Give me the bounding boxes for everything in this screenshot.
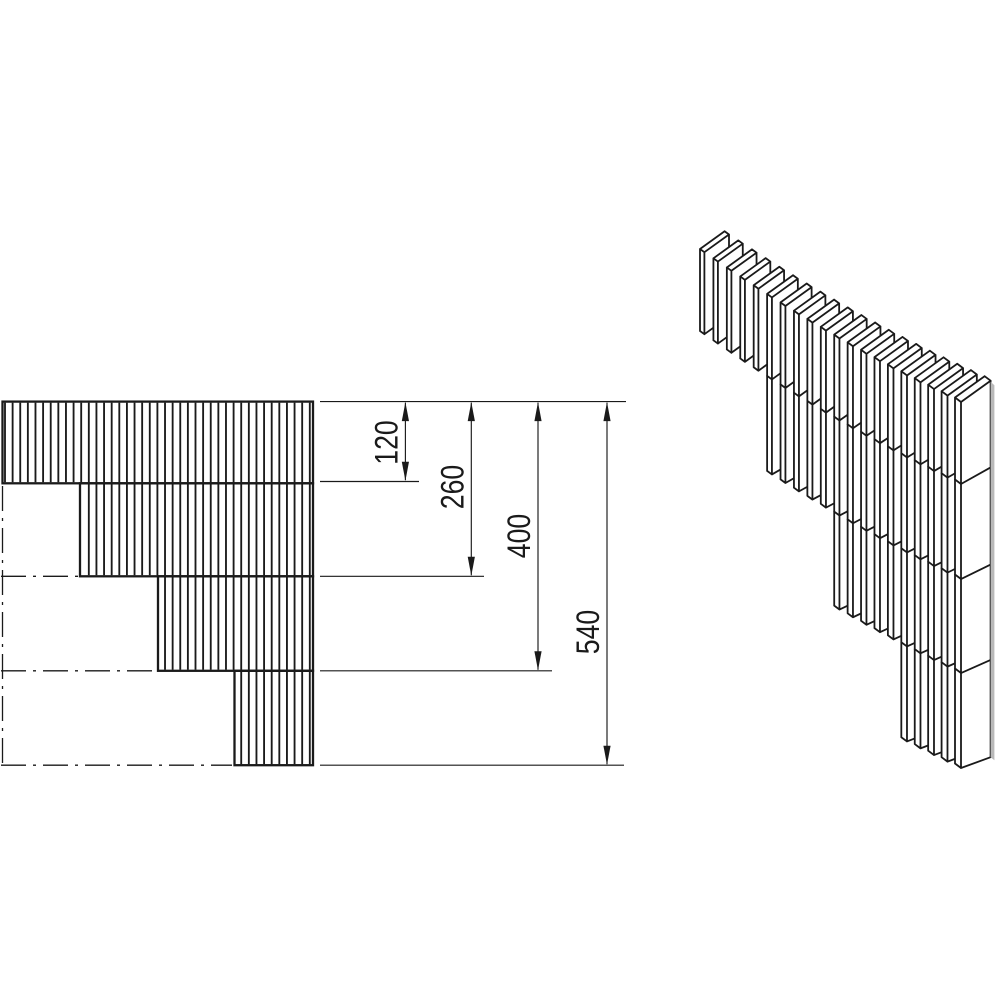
svg-text:540: 540 <box>570 610 606 655</box>
svg-text:400: 400 <box>501 514 537 559</box>
svg-text:120: 120 <box>368 420 404 465</box>
svg-text:260: 260 <box>434 465 470 510</box>
